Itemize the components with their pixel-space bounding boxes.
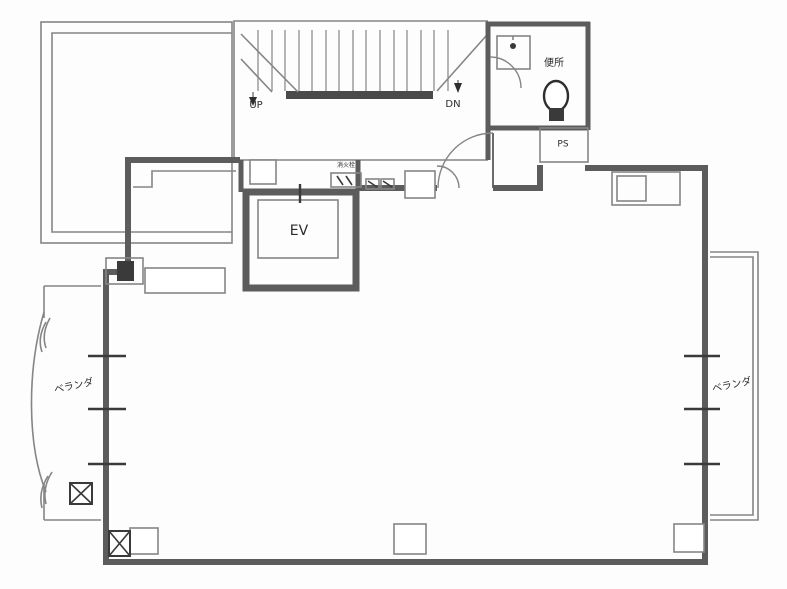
window-ticks bbox=[88, 356, 720, 464]
elevator-label: EV bbox=[290, 224, 308, 238]
balcony-break-mark bbox=[41, 472, 52, 508]
stair-rail bbox=[286, 91, 433, 99]
beam-outline bbox=[133, 171, 236, 187]
stair-break-line bbox=[437, 36, 486, 91]
toilet-room bbox=[486, 22, 590, 160]
entrance-door bbox=[405, 133, 493, 198]
door-pier bbox=[405, 171, 435, 198]
toilet-door-arc bbox=[490, 57, 521, 88]
stair-break-line bbox=[241, 34, 298, 92]
beam-outline bbox=[145, 268, 225, 293]
toilet-fixture-icon bbox=[544, 81, 568, 121]
drain-x-icon bbox=[70, 483, 92, 504]
toilet-label: 便所 bbox=[544, 59, 564, 69]
floor-plan: UP DN EV 便所 PS 消火栓 ベランダ ベランダ bbox=[0, 0, 787, 589]
column-x-icon bbox=[109, 531, 130, 556]
down-arrow-icon bbox=[454, 80, 462, 93]
wall-piers bbox=[130, 524, 704, 554]
hall-pier bbox=[250, 160, 276, 184]
left-balcony bbox=[31, 286, 101, 520]
floor-plan-drawing bbox=[0, 0, 787, 589]
hydrant-label: 消火栓 bbox=[337, 163, 355, 169]
stairs-up-label: UP bbox=[249, 101, 262, 111]
pipe-space-label: PS bbox=[557, 141, 568, 150]
outer-walls bbox=[103, 157, 708, 565]
stairs-down-label: DN bbox=[445, 100, 460, 110]
equipment-box bbox=[612, 172, 680, 205]
stairs bbox=[234, 21, 488, 160]
stair-treads bbox=[258, 30, 448, 91]
roof-outline bbox=[41, 22, 232, 243]
entrance-child-door-arc bbox=[437, 166, 459, 188]
sink-icon bbox=[497, 36, 530, 69]
stair-break-line bbox=[241, 59, 272, 92]
